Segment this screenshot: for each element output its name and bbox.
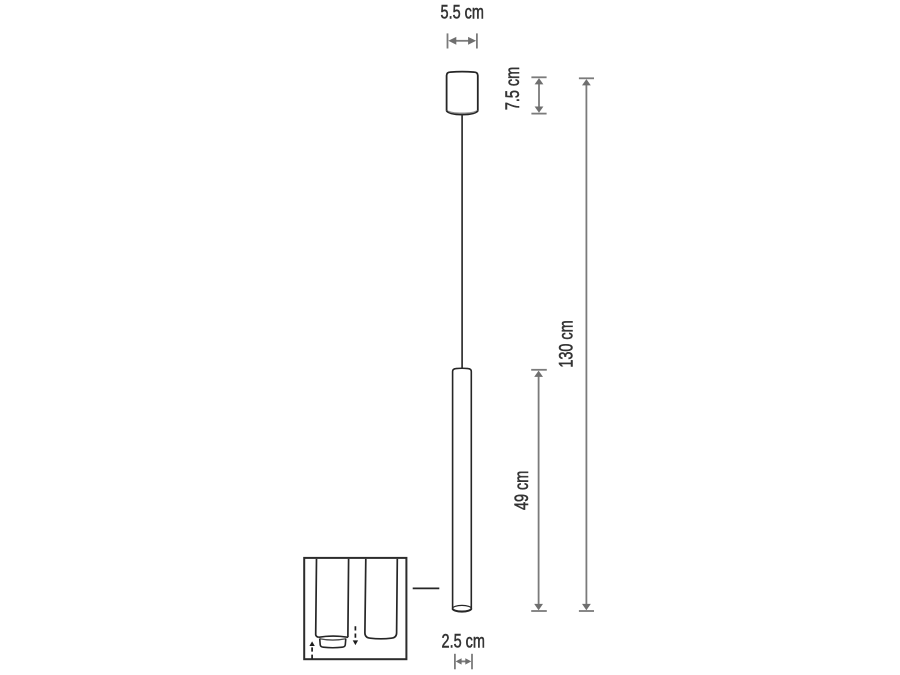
svg-text:7.5 cm: 7.5 cm	[502, 67, 523, 110]
svg-text:49 cm: 49 cm	[511, 471, 532, 510]
svg-text:5.5 cm: 5.5 cm	[441, 2, 484, 23]
svg-text:130 cm: 130 cm	[555, 320, 576, 367]
svg-text:2.5 cm: 2.5 cm	[442, 631, 485, 652]
